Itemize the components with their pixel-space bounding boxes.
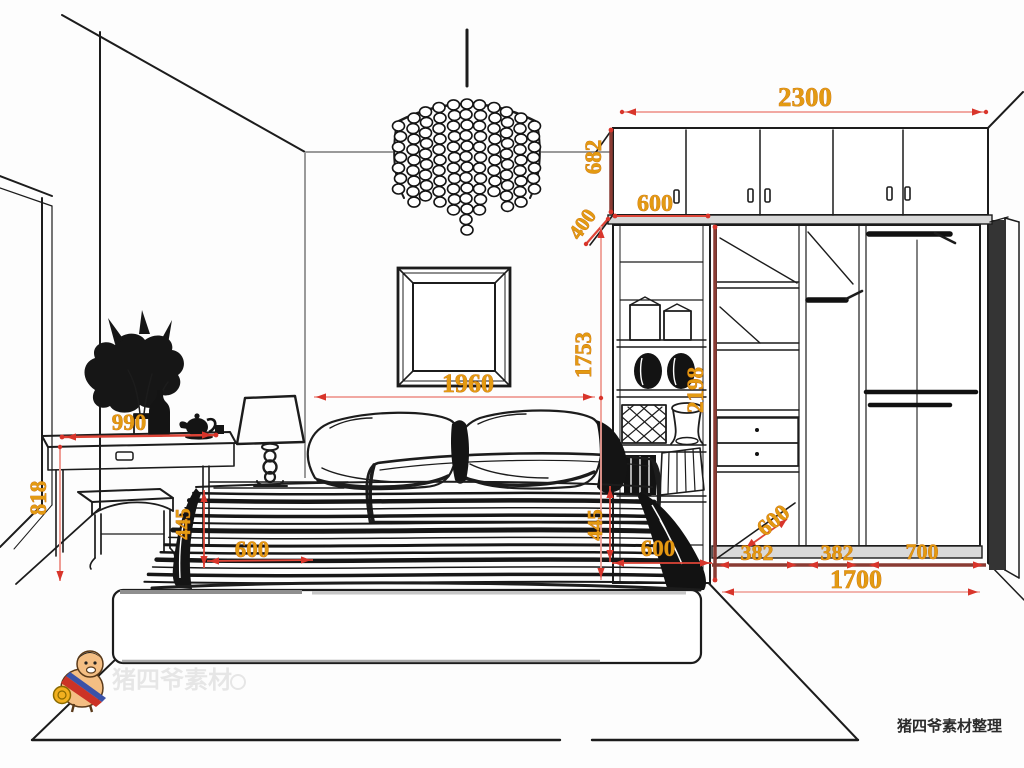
dim-wardrobe-section-1: 382	[741, 540, 774, 565]
drawer-handle	[116, 452, 133, 460]
dim-wardrobe-section-2: 382	[821, 540, 854, 565]
dim-dresser-width: 990	[112, 410, 147, 435]
gold-coin	[54, 687, 71, 704]
dim-bed-height-left: 445	[171, 508, 195, 540]
watermark-badge	[231, 675, 245, 689]
dim-wardrobe-height: 2198	[683, 367, 708, 413]
credit-text: 猪四爷素材整理	[896, 717, 1002, 735]
dim-bed-height-right: 445	[583, 509, 607, 541]
dim-bed-inset-left: 600	[235, 537, 270, 562]
footboard	[113, 590, 701, 663]
pig-mascot-logo	[54, 651, 107, 712]
stool	[78, 489, 175, 569]
dim-wardrobe-section-3: 700	[906, 539, 939, 564]
bedroom-dimension-drawing: 2300 682 600 400 1753 2198 1960 990 818 …	[0, 0, 1024, 768]
chandelier-beads	[393, 99, 541, 235]
table-lamp	[210, 396, 348, 488]
watermark-text: 猪四爷素材	[112, 666, 232, 694]
dim-bookshelf-width: 600	[637, 191, 673, 217]
dim-bookshelf-height: 1753	[571, 332, 596, 378]
dim-bed-inset-right: 600	[641, 536, 676, 561]
dim-bed-width: 1960	[442, 369, 494, 398]
chandelier	[393, 30, 542, 235]
dim-top-cabinet-width: 2300	[778, 82, 832, 112]
dim-top-cabinet-height: 682	[581, 140, 606, 175]
dim-dresser-height: 818	[26, 481, 51, 516]
wardrobe	[712, 225, 982, 559]
pillows	[308, 411, 627, 493]
dim-wardrobe-total-width: 1700	[830, 565, 882, 594]
drawing-svg: 2300 682 600 400 1753 2198 1960 990 818 …	[0, 0, 1024, 768]
right-door-frame	[989, 218, 1019, 578]
